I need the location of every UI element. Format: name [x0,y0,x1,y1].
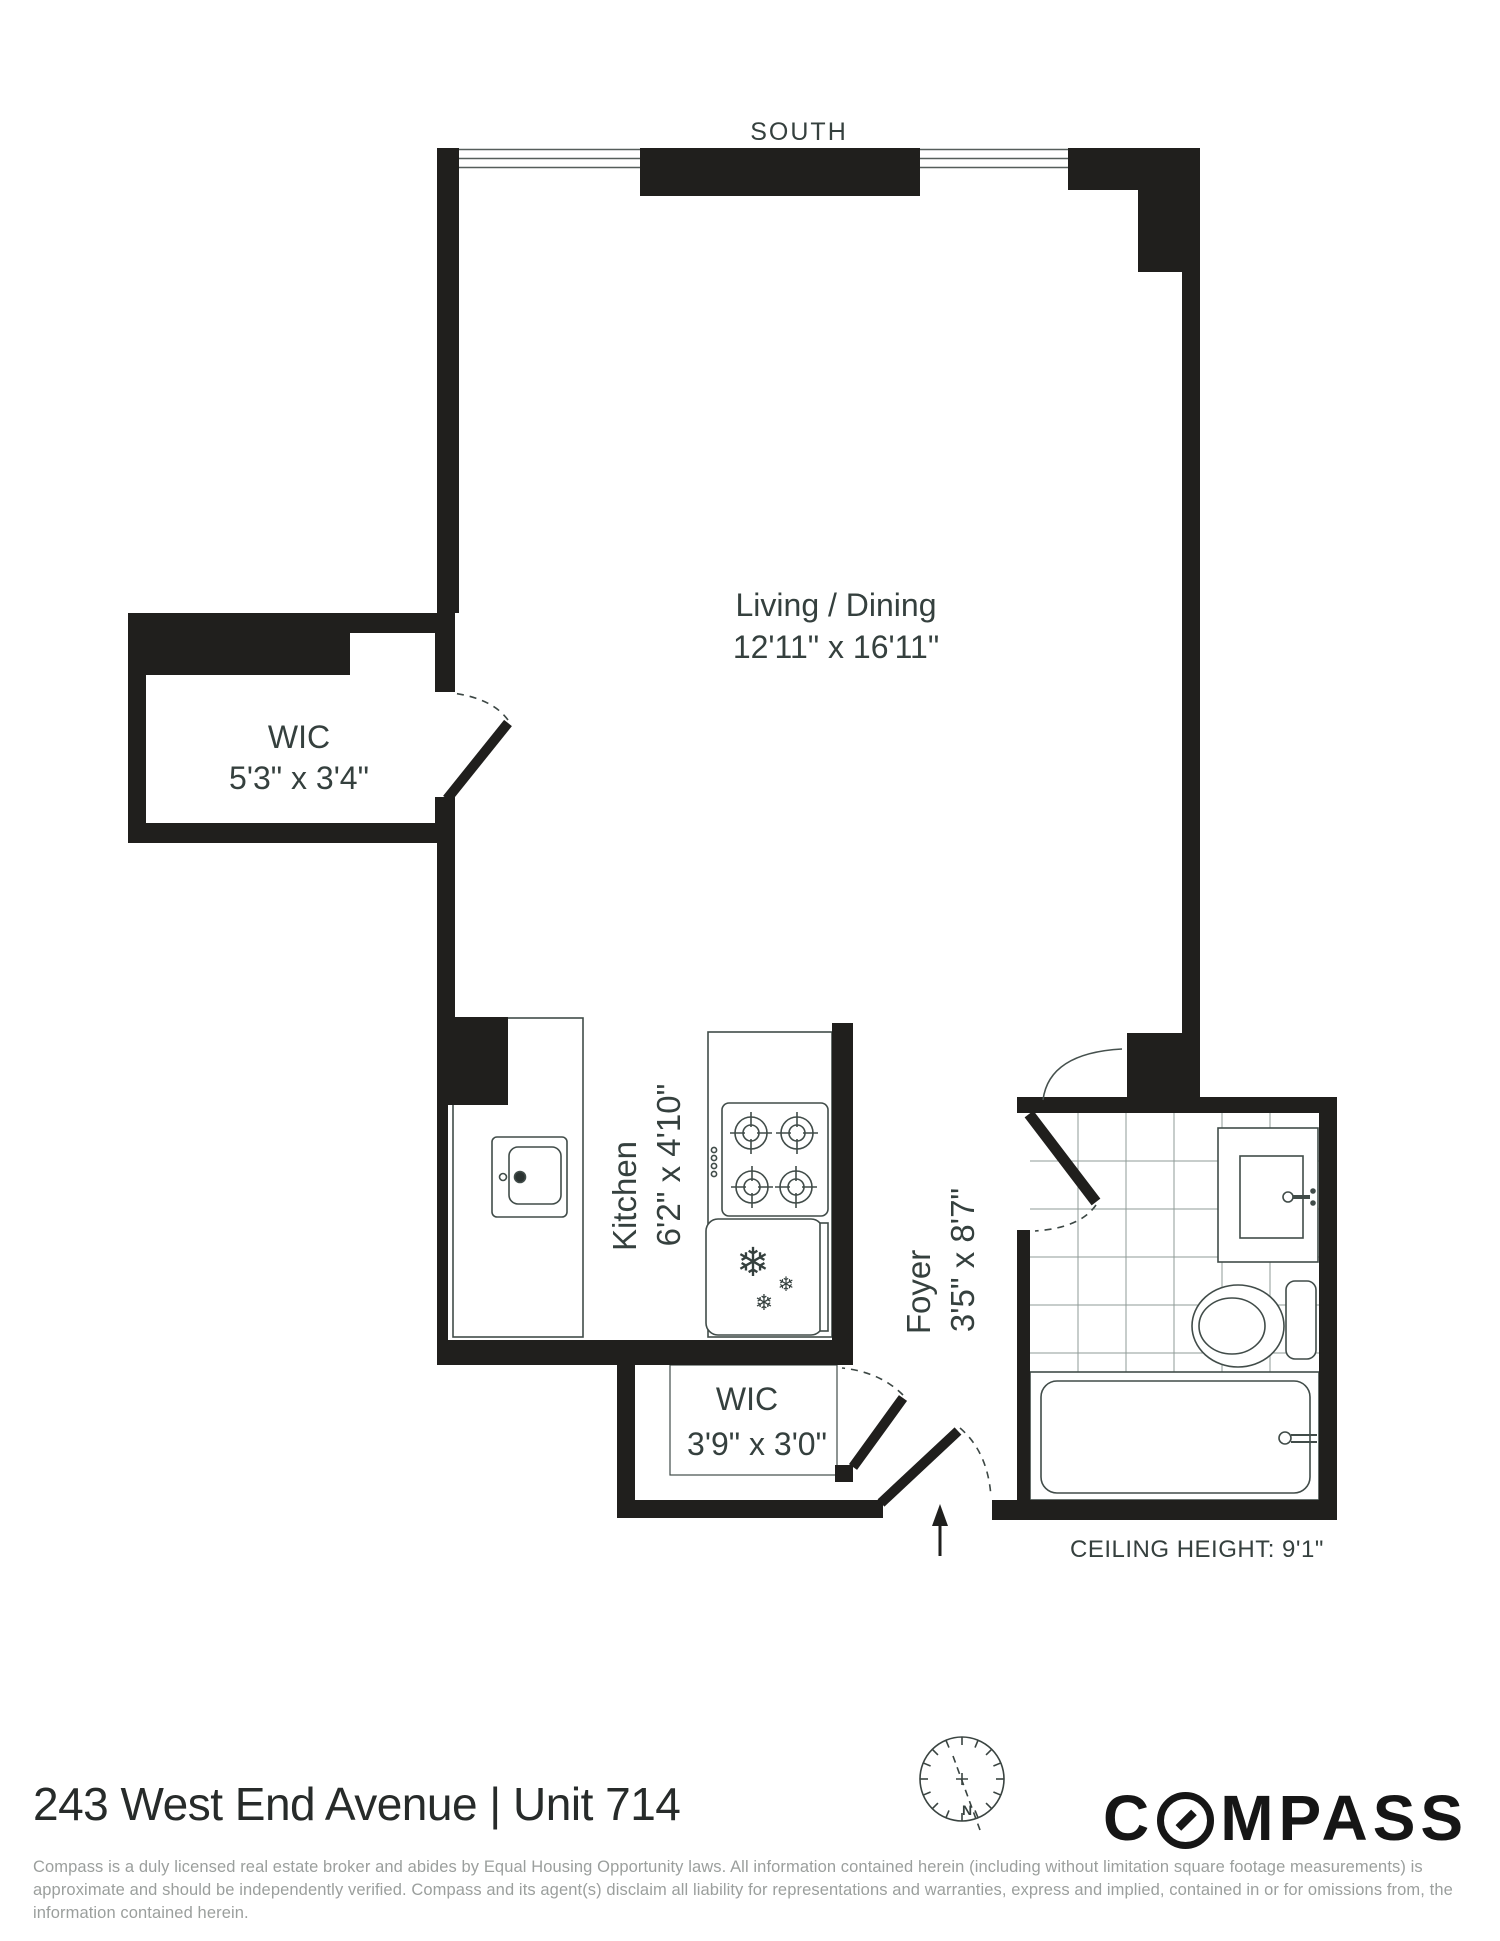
entry-door-swing [960,1428,991,1497]
sink-faucet-icon [515,1172,526,1183]
kitchen-dims: 6'2" x 4'10" [650,1084,687,1247]
wic-entry-door-leaf [853,1398,903,1467]
living-dining-label: Living / Dining [736,587,937,623]
address-title: 243 West End Avenue | Unit 714 [33,1777,680,1831]
window-living-right [920,150,1068,168]
svg-text:❄: ❄ [736,1241,770,1285]
floor-plan: ❄ ❄ ❄ [0,0,1500,1941]
svg-text:❄: ❄ [778,1274,795,1296]
foyer-label: Foyer [900,1250,937,1334]
wic-left-door-leaf [447,723,508,799]
bathtub [1030,1372,1319,1500]
north-label: N [962,1802,972,1818]
floor-plan-page: { "plan": { "compass_direction": "SOUTH"… [0,0,1500,1941]
toilet-bowl [1192,1285,1284,1367]
window-living-left [459,150,640,168]
compass-logo-text: C [1103,1786,1154,1850]
wic-entry-label: WIC [716,1381,778,1417]
compass-logo: CMPASS [1103,1786,1468,1850]
living-dining-dims: 12'11" x 16'11" [733,629,939,665]
svg-text:❄: ❄ [755,1290,773,1315]
wic-left-dims: 5'3" x 3'4" [229,760,369,796]
refrigerator-door [820,1223,828,1331]
stove [722,1103,828,1216]
toilet-tank [1286,1281,1316,1359]
wic-left-door-swing [452,693,508,720]
entry-arrow-icon [932,1504,948,1556]
entry-door-leaf [881,1431,958,1503]
compass-logo-text: MPASS [1220,1786,1468,1850]
kitchen-label: Kitchen [606,1141,643,1251]
wic-entry-dims: 3'9" x 3'0" [687,1426,827,1462]
compass-direction-label: SOUTH [750,118,848,146]
wic-left-label: WIC [268,719,330,755]
wic-entry-door-swing [842,1368,903,1395]
foyer-dims: 3'5" x 8'7" [944,1188,981,1332]
living-door-swing [1043,1049,1122,1100]
disclaimer-text: Compass is a duly licensed real estate b… [33,1856,1478,1925]
compass-rose-icon: N [920,1737,1004,1830]
compass-logo-o-icon [1157,1792,1214,1849]
ceiling-height-note: CEILING HEIGHT: 9'1" [1070,1536,1324,1563]
